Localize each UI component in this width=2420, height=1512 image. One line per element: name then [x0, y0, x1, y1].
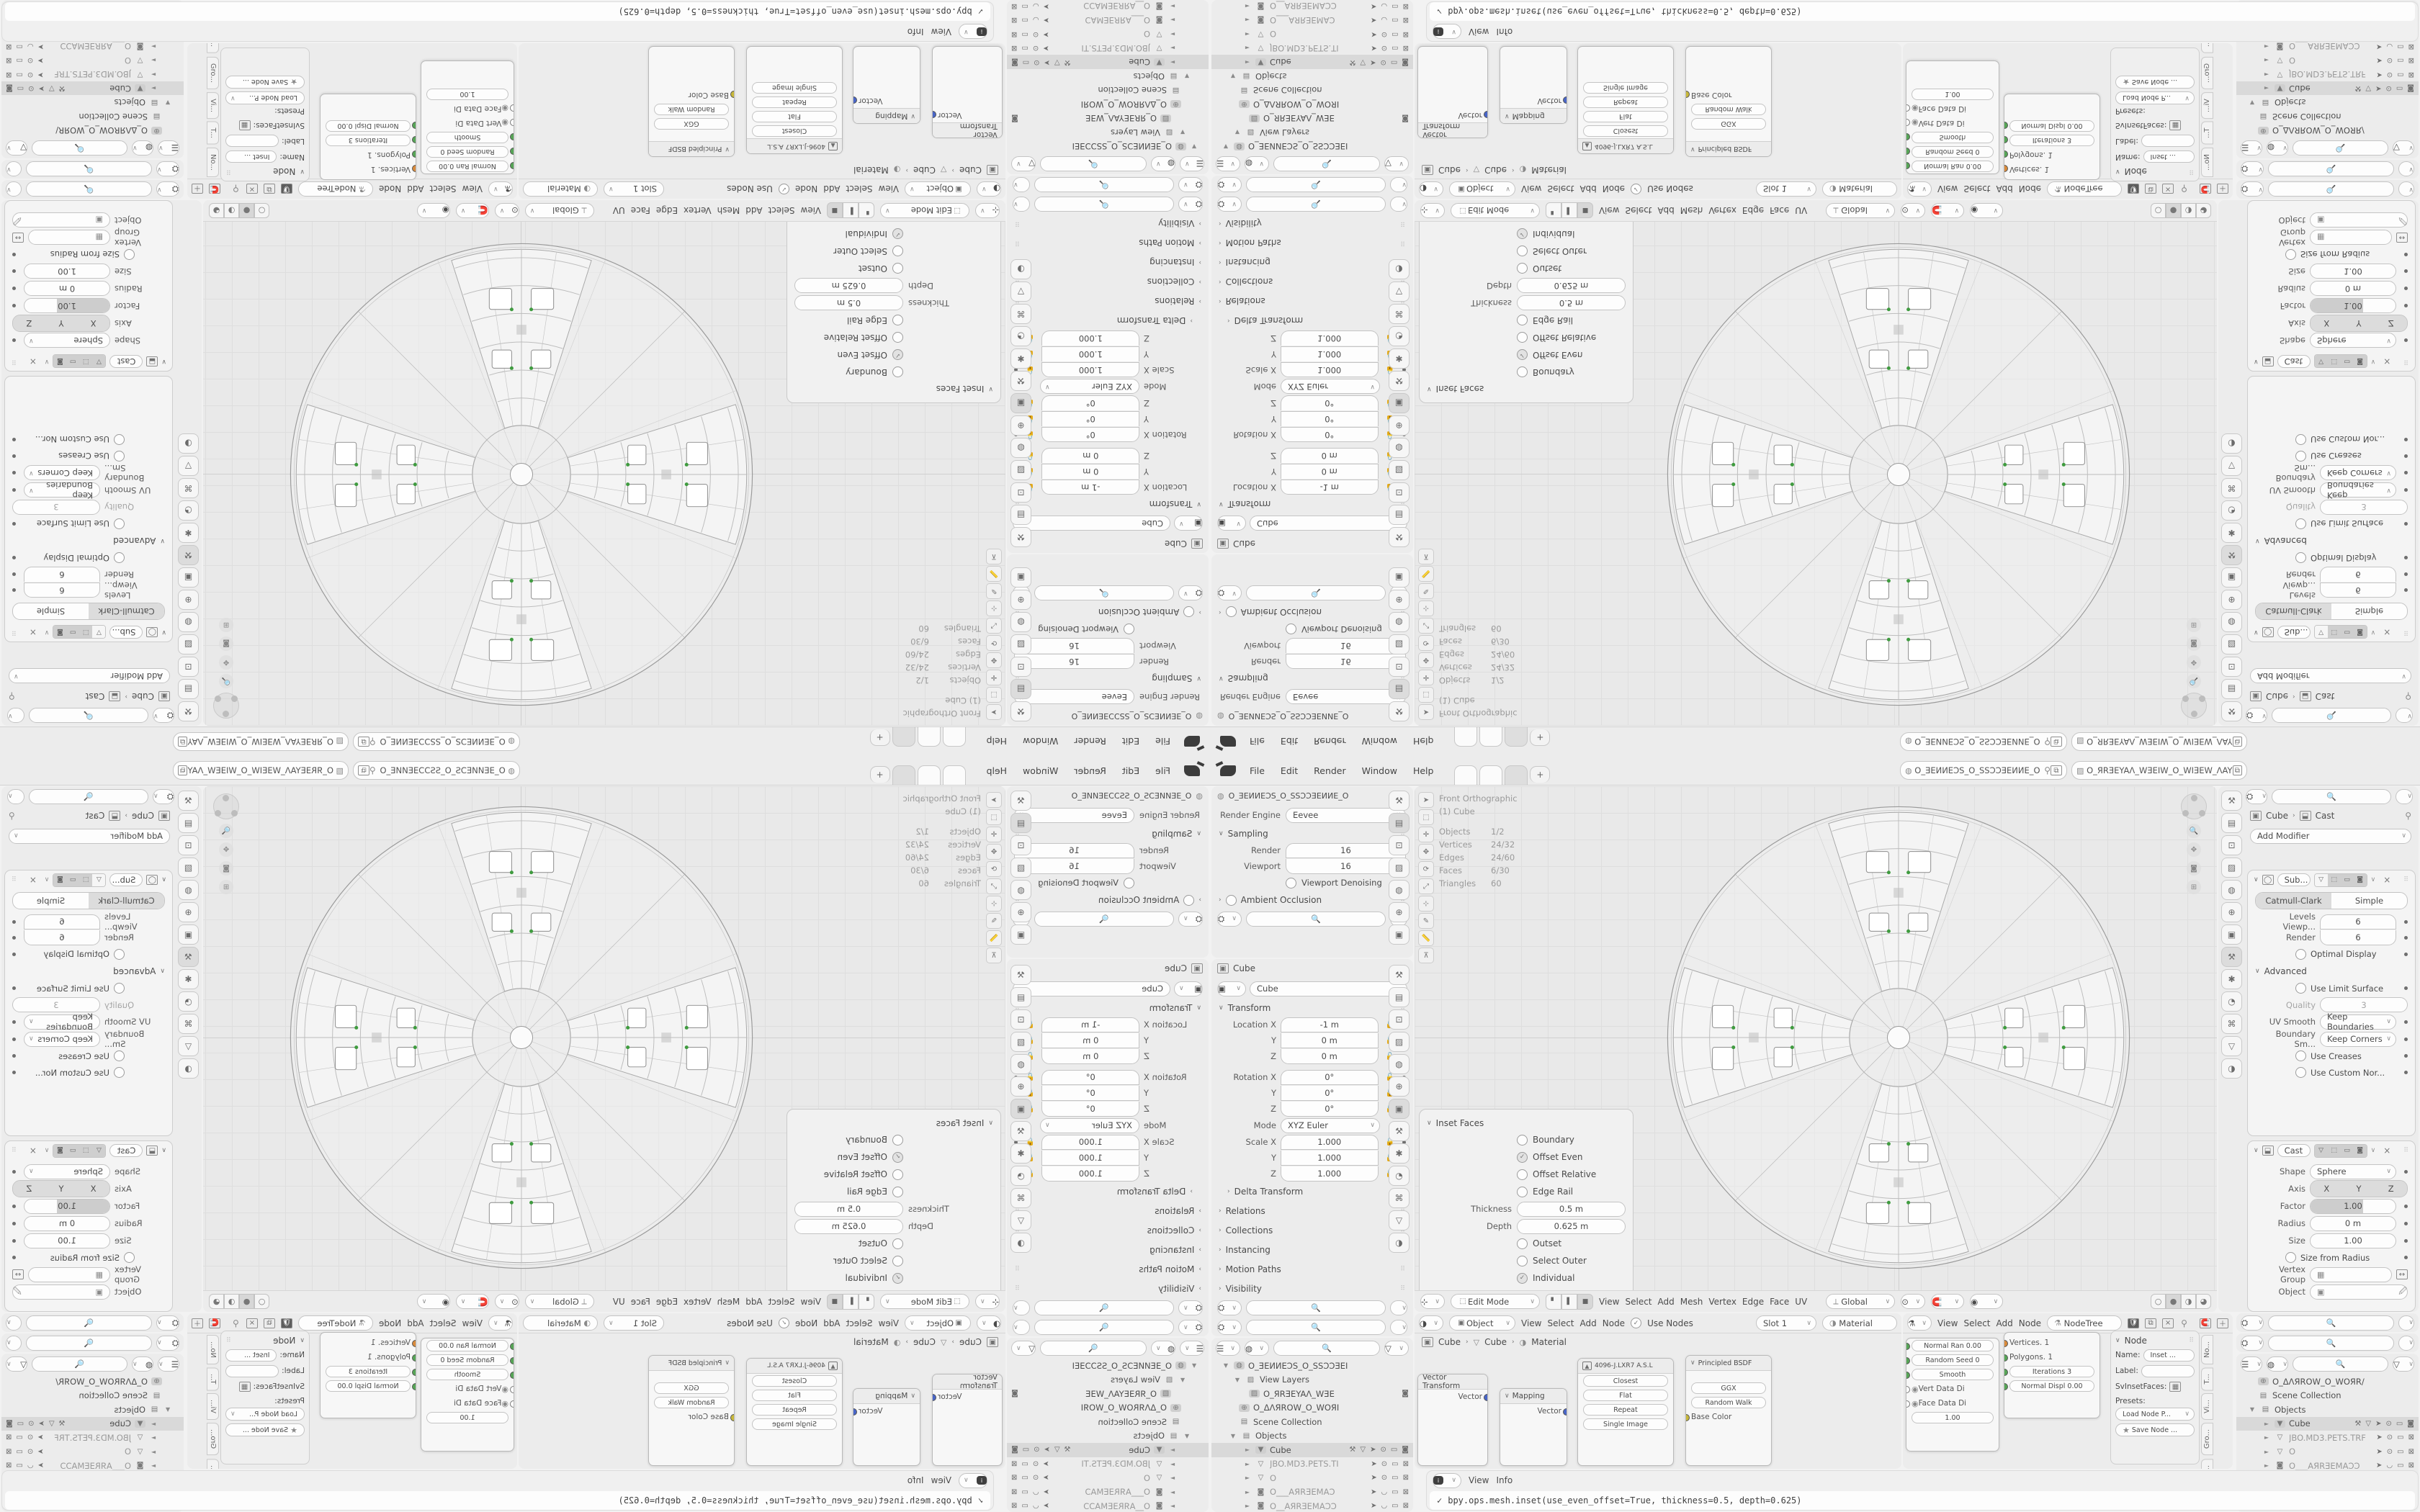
subdivided-sphere-mesh[interactable] [1654, 793, 2143, 1282]
info-log-row[interactable]: ✓ bpy.ops.mesh.inset(use_even_offset=Tru… [5, 1491, 990, 1510]
cast-shape-select[interactable]: Sphere∨ [2310, 333, 2396, 348]
image-texture-node[interactable]: ▲4096-J.LXR7 A.S.L Closest Flat Repeat S… [746, 46, 843, 154]
save-node-preset-button[interactable]: ★ Save Node ... [2115, 1423, 2195, 1436]
outliner-row-cube[interactable]: ►▼Cube ⚒▽➤⊙▭◙ [1211, 1443, 1413, 1457]
delete-modifier-button[interactable]: × [30, 627, 37, 637]
sampling-section[interactable]: ∨Sampling⠿ [1007, 825, 1209, 842]
viewport-menu-edge[interactable]: Edge [656, 206, 678, 216]
node-label-input[interactable] [225, 135, 279, 148]
material-slot-select[interactable]: Slot 1∨ [604, 1315, 664, 1331]
particles-tab[interactable]: ✱ [2221, 969, 2242, 989]
copy-icon[interactable]: ⧉ [264, 1318, 275, 1328]
viewport-menu-view[interactable]: View [801, 206, 821, 216]
camera-view-gizmo[interactable]: ◙ [219, 636, 233, 651]
info-menu-info[interactable]: Info [1496, 27, 1512, 37]
disable-viewport-icon[interactable]: ▭ [17, 84, 24, 92]
modifier-name-input[interactable]: Sub... [2277, 626, 2311, 639]
delete-modifier-button[interactable]: × [30, 1146, 37, 1156]
keyframe-dot[interactable] [2404, 986, 2408, 990]
node-menu-view[interactable]: View [462, 184, 483, 194]
outliner-row-objects[interactable]: ▼▤Objects [1211, 1429, 1413, 1444]
render-tab[interactable]: ▤ [1389, 813, 1410, 833]
options-dropdown[interactable]: ∨ [1390, 197, 1407, 212]
viewport-menu-uv[interactable]: UV [613, 1297, 625, 1307]
workspace-tab-active[interactable] [1505, 765, 1528, 785]
tab-sverchok[interactable]: Sverc... [2201, 1459, 2213, 1470]
material-shading-button[interactable]: ◑ [2181, 203, 2196, 218]
material-slot-select[interactable]: Slot 1∨ [604, 181, 664, 197]
properties-search-input[interactable]: 🔍 [1246, 912, 1386, 927]
rotation-x-input[interactable]: 0° [1041, 428, 1139, 443]
editor-type-button[interactable]: i ∨ [959, 24, 987, 40]
particles-tab[interactable]: ✱ [1389, 348, 1410, 369]
principled-bsdf-node[interactable]: ∨Principled BSDF GGX Random Walk Base Co… [1685, 46, 1772, 157]
options-dropdown[interactable]: ∨ [1390, 1320, 1407, 1335]
rotation-z-input[interactable]: 0° [1041, 1102, 1139, 1117]
modifiers-tab[interactable]: ⚒ [2221, 947, 2242, 967]
edge-rail-checkbox[interactable] [1517, 1187, 1528, 1197]
drag-handle[interactable]: ⠿ [2403, 876, 2409, 883]
properties-search-input[interactable]: 🔍 [26, 182, 152, 197]
info-menu-view[interactable]: View [931, 27, 951, 37]
hide-eye-icon[interactable]: ⊙ [2385, 84, 2391, 92]
hide-eye-icon[interactable]: ⊙ [2387, 1434, 2393, 1441]
disable-render-icon[interactable]: ⊠ [1011, 16, 1017, 24]
properties-search-input[interactable]: 🔍 [1246, 177, 1386, 192]
editor-type-button[interactable]: ⛭∨ [1178, 1300, 1203, 1315]
disable-render-icon[interactable]: ◙ [1402, 1446, 1409, 1454]
outliner-row-world[interactable]: ⊕O_ΔΛЯROW_O_WOЯI [1007, 97, 1209, 112]
disable-render-icon[interactable]: ⊠ [1011, 30, 1017, 38]
rendered-shading-button[interactable]: ◕ [209, 203, 224, 218]
samples-render-input[interactable]: 16 [1014, 654, 1134, 670]
outset-checkbox[interactable] [892, 264, 903, 274]
tab-node[interactable]: No... [207, 1335, 219, 1364]
modifier-name-input[interactable]: Cast [109, 1144, 143, 1157]
camera-icon[interactable]: ◙ [1402, 1390, 1409, 1398]
tab-node[interactable]: No... [2201, 1335, 2213, 1364]
advanced-section[interactable]: ∨Advanced [12, 963, 165, 980]
properties-search-input[interactable]: 🔍 [2272, 708, 2391, 724]
tab-group[interactable]: Gro... [2201, 57, 2213, 89]
outliner-row-scene[interactable]: ▼◍O_ƎEИИEƆS_O_SSƆƆƎEI [1211, 1359, 1413, 1373]
scale-z-input[interactable]: 1.000 [1281, 331, 1379, 346]
properties-search-input[interactable]: 🔍 [26, 162, 152, 177]
levels-render-input[interactable]: 6 [2320, 930, 2396, 945]
preset-icon[interactable]: ▦ [239, 120, 251, 130]
cast-factor-slider[interactable]: 1.00 [2310, 299, 2396, 314]
node-menu-node[interactable]: Node [379, 184, 401, 194]
options-dropdown[interactable]: ∨ [1013, 177, 1030, 192]
tab-group[interactable]: Gro... [207, 1423, 219, 1455]
output-tab[interactable]: ⊡ [1389, 1009, 1410, 1030]
expand-icon[interactable]: ∨ [2254, 629, 2259, 636]
disable-viewport-icon[interactable]: ▭ [1391, 30, 1398, 38]
mapping-node[interactable]: ∨Mapping Vector [853, 46, 920, 124]
rotation-y-input[interactable]: 0° [1041, 1086, 1139, 1101]
disable-render-icon[interactable]: ⊠ [6, 56, 12, 64]
outliner-filter-button[interactable]: ▽∨ [6, 1356, 27, 1372]
select-arrow-icon[interactable]: ➤ [38, 1462, 44, 1470]
visibility-section[interactable]: ›Visibility⠿ [1211, 1279, 1413, 1298]
keyframe-dot[interactable] [12, 1170, 16, 1174]
properties-search-input[interactable]: 🔍 [1034, 1320, 1174, 1335]
shader-menu-view[interactable]: View [879, 1318, 899, 1328]
add-modifier-button[interactable]: Add Modifier∨ [2250, 669, 2411, 684]
advanced-section[interactable]: ∨Advanced [2255, 532, 2408, 549]
vertex-group-input[interactable]: ▦ [28, 1267, 110, 1282]
sverchok-mesh-node[interactable]: Vertices. 1 Polygons. 1 Iterations 3 Nor… [2004, 1332, 2100, 1418]
rotation-y-input[interactable]: 0° [1281, 412, 1379, 427]
menu-render[interactable]: Render [1306, 737, 1354, 747]
copy-icon[interactable]: ⧉ [178, 737, 187, 747]
axis-orbit-gizmo[interactable] [2181, 693, 2207, 719]
proportional-edit-toggle[interactable]: ◉∨ [1970, 1294, 2003, 1309]
outliner-filter-id[interactable]: ◍∨ [1151, 1341, 1175, 1356]
transform-section[interactable]: ∨Transform⠿ [1211, 495, 1413, 513]
location-y-input[interactable]: 0 m [1041, 464, 1139, 480]
source-select[interactable]: Single Image [752, 82, 837, 94]
face-select-button[interactable]: ■ [827, 1294, 843, 1310]
axis-z-button[interactable]: Z [13, 315, 45, 331]
drag-handle[interactable]: ⠿ [11, 358, 17, 365]
tool-tab[interactable]: ⚒ [1010, 965, 1031, 985]
render-toggle[interactable]: ◙ [53, 356, 66, 368]
keyframe-dot[interactable] [12, 573, 16, 577]
outliner-filter-button[interactable]: ▽∨ [1384, 156, 1409, 171]
edit-mode-toggle[interactable]: ▽ [2315, 626, 2328, 639]
outliner-search-input[interactable]: 🔍 [32, 140, 127, 156]
world-tab[interactable]: ⊕ [178, 590, 199, 610]
properties-search-input[interactable]: 🔍 [26, 1315, 152, 1331]
physics-tab[interactable]: ◔ [1010, 326, 1031, 346]
samples-render-input[interactable]: 16 [1286, 843, 1406, 858]
outliner-row-camera[interactable]: ►◙O__AЯRƎEMAƆƆ ➤◡▭⊠ [1007, 0, 1209, 13]
blender-logo-icon[interactable] [1220, 765, 1236, 776]
editor-type-button[interactable]: ⛭∨ [153, 789, 174, 804]
modifier-extras-dropdown[interactable]: ∨ [40, 1147, 50, 1154]
select-outer-checkbox[interactable] [892, 246, 903, 257]
edit-mode-toggle[interactable]: ▽ [2315, 356, 2328, 368]
select-arrow-icon[interactable]: ➤ [1371, 1474, 1376, 1482]
view-layer-tab[interactable]: ▨ [1010, 634, 1031, 654]
outliner-search-input[interactable]: 🔍 [2293, 140, 2388, 156]
ambient-occlusion-checkbox[interactable] [1226, 607, 1237, 618]
outliner-row-scene-collection[interactable]: ▤Scene Collection [1, 1389, 184, 1403]
node-menu-add[interactable]: Add [407, 1318, 423, 1328]
select-arrow-icon[interactable]: ➤ [2376, 1462, 2382, 1470]
render-tab[interactable]: ▤ [1389, 679, 1410, 699]
outliner-row[interactable]: ►▽O ➤⊙▭⊠ [1211, 27, 1413, 42]
shader-type-select[interactable]: ▣Object∨ [905, 1315, 971, 1331]
render-tab[interactable]: ▤ [1010, 813, 1031, 833]
tool-tab[interactable]: ⚒ [2221, 791, 2242, 811]
delta-transform-section[interactable]: ›Delta Transform [1211, 1182, 1413, 1201]
scene-tab[interactable]: ◍ [178, 880, 199, 900]
keyframe-dot[interactable] [2404, 1038, 2408, 1041]
invert-vgroup-button[interactable]: ↔ [12, 1269, 24, 1279]
vertex-select-button[interactable]: ▘ [859, 1294, 874, 1310]
workspace-tab-active[interactable] [892, 727, 915, 747]
offset-relative-checkbox[interactable] [1517, 333, 1528, 343]
select-arrow-icon[interactable]: ➤ [1043, 1474, 1049, 1482]
disable-viewport-icon[interactable]: ▭ [1023, 1446, 1029, 1454]
editor-type-button[interactable]: ⛭∨ [1178, 586, 1203, 601]
sss-method-select[interactable]: Random Walk [654, 104, 729, 115]
rendered-shading-button[interactable]: ◕ [2196, 1294, 2211, 1309]
image-texture-node[interactable]: ▲4096-J.LXR7 A.S.L Closest Flat Repeat S… [746, 1358, 843, 1466]
boundary-checkbox[interactable] [892, 367, 903, 378]
collections-section[interactable]: ›Collections⠿ [1211, 1220, 1413, 1240]
transform-section[interactable]: ∨Transform⠿ [1007, 495, 1209, 513]
viewport-menu-face[interactable]: Face [1770, 1297, 1789, 1307]
disable-viewport-icon[interactable]: ▭ [1021, 1474, 1028, 1482]
offset-even-checkbox[interactable]: ✓ [1517, 1152, 1528, 1163]
world-tab[interactable]: ⊕ [1010, 590, 1031, 610]
editor-type-button[interactable]: ◑∨ [977, 181, 1001, 197]
modifiers-tab[interactable]: ⚒ [178, 545, 199, 565]
info-log-row[interactable]: ✓ bpy.ops.mesh.inset(use_even_offset=Tru… [1430, 2, 2415, 21]
disable-viewport-icon[interactable]: ▭ [1391, 1488, 1398, 1496]
workspace-tab[interactable] [1454, 727, 1477, 747]
cursor-tool[interactable]: ✛ [1418, 827, 1434, 842]
advanced-section[interactable]: ∨Advanced [12, 532, 165, 549]
node-menu-node[interactable]: Node [2019, 1318, 2041, 1328]
particles-tab[interactable]: ✱ [178, 523, 199, 543]
size-from-radius-checkbox[interactable] [124, 1252, 135, 1263]
projection-select[interactable]: Flat [752, 1390, 837, 1401]
particles-tab[interactable]: ✱ [1010, 1143, 1031, 1164]
outliner-row-scene-collection[interactable]: ▤Scene Collection [1211, 84, 1413, 98]
interpolation-select[interactable]: Closest [1583, 1375, 1668, 1387]
measure-tool[interactable]: 📏 [1418, 930, 1434, 946]
cast-size-input[interactable]: 1.00 [24, 264, 110, 279]
disable-render-icon[interactable]: ⊠ [2408, 1462, 2414, 1470]
levels-viewport-input[interactable]: 6 [24, 583, 100, 598]
hide-eye-icon[interactable]: ⊙ [28, 1420, 34, 1428]
close-icon[interactable]: × [246, 1318, 258, 1328]
select-arrow-icon[interactable]: ➤ [2376, 1448, 2382, 1456]
viewport-menu-select[interactable]: Select [1625, 1297, 1652, 1307]
samples-render-input[interactable]: 16 [1286, 654, 1406, 670]
delete-modifier-button[interactable]: × [2383, 875, 2390, 885]
node-menu-select[interactable]: Select [429, 1318, 456, 1328]
delta-transform-section[interactable]: ›Delta Transform [1007, 311, 1209, 330]
render-toggle[interactable]: ◙ [2354, 626, 2367, 639]
outliner-row[interactable]: ►▽O ➤⊙▭⊠ [1, 53, 184, 68]
tab-tree[interactable]: T... [2201, 122, 2213, 145]
add-workspace-button[interactable]: + [870, 766, 890, 783]
boundary-smooth-select[interactable]: Keep Corners∨ [2320, 466, 2396, 481]
samples-render-input[interactable]: 16 [1014, 843, 1134, 858]
outliner-row[interactable]: ►▽JBO.MD3.PETS.TRF ➤⊙▭⊠ [2236, 1431, 2419, 1445]
pivot-point-select[interactable]: ⊙∨ [495, 1294, 519, 1309]
outliner-row-objects[interactable]: ▼▤Objects [1, 1403, 184, 1417]
offset-even-checkbox[interactable]: ✓ [892, 350, 903, 361]
modifiers-tab[interactable]: ⚒ [178, 947, 199, 967]
editor-type-button[interactable]: ⛭∨ [156, 1336, 179, 1351]
keyframe-dot[interactable] [2404, 1256, 2408, 1259]
viewport-menu-vertex[interactable]: Vertex [1708, 1297, 1736, 1307]
outliner-row-camera[interactable]: ►◙O___AЯRƎEMAƆ ➤◡▭⊠ [1007, 1485, 1209, 1500]
object-tab[interactable]: ▣ [1010, 1099, 1031, 1119]
modifiers-tab[interactable]: ⚒ [1010, 1121, 1031, 1141]
viewport-denoising-checkbox[interactable] [1124, 624, 1134, 635]
keyframe-dot[interactable] [2404, 1239, 2408, 1243]
constraints-tab[interactable]: ⌘ [178, 478, 199, 498]
render-tab[interactable]: ▤ [2221, 813, 2242, 833]
disable-render-icon[interactable]: ⊠ [2408, 71, 2414, 78]
keyframe-dot[interactable] [2404, 270, 2408, 274]
extension-select[interactable]: Repeat [752, 96, 837, 108]
scale-y-input[interactable]: 1.000 [1041, 347, 1139, 362]
viewport-menu-select[interactable]: Select [1625, 206, 1652, 216]
workspace-tab-active[interactable] [1505, 727, 1528, 747]
size-from-radius-checkbox[interactable] [124, 249, 135, 260]
outliner-row-world[interactable]: ⊕O_ΔΛЯROW_O_WOЯR/ [1, 124, 184, 138]
save-node-preset-button[interactable]: ★ Save Node ... [225, 1423, 305, 1436]
outliner-filter-id[interactable]: ◍∨ [132, 140, 153, 156]
outliner-filter-button[interactable]: ▽∨ [1384, 1341, 1409, 1356]
render-toggle[interactable]: ◙ [53, 626, 66, 639]
hide-eye-icon[interactable]: ⊙ [2387, 1448, 2393, 1456]
disable-render-icon[interactable]: ⊠ [1011, 1460, 1017, 1468]
viewport-menu-vertex[interactable]: Vertex [1708, 206, 1736, 216]
add-workspace-button[interactable]: + [870, 729, 890, 746]
viewport-menu-uv[interactable]: UV [613, 206, 625, 216]
node-name-input[interactable]: Inset ... [2143, 151, 2195, 163]
view-layer-tab[interactable]: ▨ [2221, 634, 2242, 654]
options-dropdown[interactable]: ∨ [6, 162, 22, 177]
editor-type-button[interactable]: ⛭∨ [1217, 1300, 1242, 1315]
hide-eye-icon[interactable]: ⊙ [1034, 58, 1039, 66]
mapping-node[interactable]: ∨Mapping Vector [1500, 1388, 1567, 1466]
cursor-tool[interactable]: ✛ [986, 827, 1002, 842]
eyedropper-icon[interactable]: 🖉 [13, 214, 22, 228]
outliner-row-objects[interactable]: ▼▤Objects [1007, 1429, 1209, 1444]
menu-edit[interactable]: Edit [1114, 737, 1147, 747]
disable-viewport-icon[interactable]: ▭ [1391, 1474, 1398, 1482]
disable-render-icon[interactable]: ⊠ [2408, 56, 2414, 64]
options-dropdown[interactable]: ∨ [2398, 1336, 2414, 1351]
keyframe-dot[interactable] [2404, 589, 2408, 593]
tab-sverchok[interactable]: Sverc... [207, 43, 219, 54]
tool-tab[interactable]: ⚒ [1389, 527, 1410, 547]
uv-smooth-select[interactable]: Keep Boundaries∨ [24, 1014, 100, 1030]
mode-select[interactable]: ⬚ Edit Mode∨ [880, 1294, 969, 1309]
output-tab[interactable]: ⊡ [2221, 835, 2242, 855]
disable-viewport-icon[interactable]: ▭ [16, 1434, 22, 1441]
disable-viewport-icon[interactable]: ▭ [2396, 1420, 2403, 1428]
node-tree-select[interactable]: ⚗ NodeTree [2047, 1315, 2122, 1331]
vector-transform-node[interactable]: Vector Transform Vector [1417, 1374, 1488, 1466]
outliner-row-cube[interactable]: ►▼Cube ⚒▽➤⊙▭◙ [1007, 1443, 1209, 1457]
perspective-gizmo[interactable]: ⊞ [219, 618, 233, 632]
pin-icon[interactable]: ⚲ [2044, 737, 2051, 747]
menu-edit[interactable]: Edit [1273, 737, 1306, 747]
editor-type-button[interactable]: ⛭∨ [1178, 1320, 1203, 1335]
use-limit-surface-checkbox[interactable] [2295, 518, 2306, 529]
material-tab[interactable]: ◑ [178, 1058, 199, 1079]
tab-node[interactable]: No... [2201, 148, 2213, 177]
cast-radius-input[interactable]: 0 m [24, 282, 110, 297]
disable-viewport-icon[interactable]: ▭ [1021, 1488, 1028, 1496]
use-creases-checkbox[interactable] [2295, 451, 2306, 462]
viewport-menu-view[interactable]: View [1599, 1297, 1619, 1307]
scene-tab[interactable]: ◍ [1389, 612, 1410, 632]
drag-handle[interactable]: ⠿ [11, 1147, 17, 1154]
disable-render-icon[interactable]: ◙ [6, 1420, 13, 1428]
expand-icon[interactable]: ∨ [2254, 876, 2259, 883]
keyframe-dot[interactable] [2404, 438, 2408, 441]
viewport-menu-select[interactable]: Select [768, 1297, 794, 1307]
outliner-row-world[interactable]: ⊕O_ΔΛЯROW_O_WOЯR/ [1, 1374, 184, 1389]
tweak-tool[interactable]: ➤ [986, 704, 1002, 720]
select-arrow-icon[interactable]: ➤ [1044, 16, 1049, 24]
hide-eye-icon[interactable]: ⊙ [1380, 58, 1386, 66]
outliner-row[interactable]: ►▽JBO.MD3.PETS.TI ➤⊙▭⊠ [1211, 41, 1413, 55]
perspective-gizmo[interactable]: ⊞ [2187, 618, 2201, 632]
extrude-tool[interactable]: ⊼ [1418, 948, 1434, 963]
advanced-section[interactable]: ∨Advanced [2255, 963, 2408, 980]
disable-render-icon[interactable]: ⊠ [6, 1434, 12, 1441]
disable-viewport-icon[interactable]: ▭ [16, 1462, 22, 1470]
ambient-occlusion-section[interactable]: › Ambient Occlusion⠿ [1211, 603, 1413, 621]
pin-icon[interactable]: ⚲ [9, 811, 15, 821]
render-tab[interactable]: ▤ [1010, 505, 1031, 525]
viewport-menu-mesh[interactable]: Mesh [1680, 1297, 1703, 1307]
outliner-row-objects[interactable]: ▼▤Objects [1007, 69, 1209, 84]
depth-input[interactable]: 0.625 m [1517, 279, 1626, 294]
select-arrow-icon[interactable]: ➤ [37, 71, 43, 78]
preset-icon[interactable]: ▦ [2169, 120, 2181, 130]
solid-shading-button[interactable]: ● [2166, 203, 2181, 218]
render-tab[interactable]: ▤ [1010, 987, 1031, 1007]
render-tab[interactable]: ▤ [2221, 679, 2242, 699]
expand-icon[interactable]: ∨ [2254, 358, 2259, 365]
load-node-preset-button[interactable]: Load Node P...∨ [2115, 1408, 2195, 1421]
visibility-section[interactable]: ›Visibility⠿ [1007, 214, 1209, 233]
extension-select[interactable]: Repeat [1583, 1404, 1668, 1416]
keyframe-dot[interactable] [2404, 253, 2408, 256]
delete-modifier-button[interactable]: × [30, 875, 37, 885]
scale-y-input[interactable]: 1.000 [1281, 347, 1379, 362]
select-arrow-icon[interactable]: ➤ [39, 1420, 45, 1428]
edit-mode-toggle[interactable]: ▽ [92, 356, 105, 368]
hide-eye-icon[interactable]: ⊙ [1034, 1446, 1039, 1454]
snap-icon[interactable]: 🧲 [2200, 184, 2211, 194]
new-tree-icon[interactable]: ＋ [192, 184, 203, 194]
delete-modifier-button[interactable]: × [2383, 1146, 2390, 1156]
viewport-menu-edge[interactable]: Edge [656, 1297, 678, 1307]
data-tab[interactable]: ▽ [2221, 1036, 2242, 1056]
outliner-filter-button[interactable]: ▽∨ [1011, 156, 1036, 171]
outliner-row-scene-collection[interactable]: ▤Scene Collection [1007, 1415, 1209, 1429]
tool-tab[interactable]: ⚒ [1010, 791, 1031, 811]
render-toggle[interactable]: ◙ [2354, 356, 2367, 368]
scale-z-input[interactable]: 1.000 [1281, 1166, 1379, 1182]
properties-search-input[interactable]: 🔍 [2268, 1315, 2394, 1331]
shader-menu-add[interactable]: Add [823, 1318, 840, 1328]
editor-type-button[interactable]: ⊹∨ [975, 203, 1000, 218]
scale-tool[interactable]: ⤢ [986, 878, 1002, 894]
extrude-tool[interactable]: ⊼ [986, 948, 1002, 963]
keyframe-dot[interactable] [12, 1205, 16, 1208]
physics-tab[interactable]: ◔ [1389, 326, 1410, 346]
select-arrow-icon[interactable]: ➤ [1370, 58, 1376, 66]
output-tab[interactable]: ⊡ [178, 657, 199, 677]
properties-search-input[interactable]: 🔍 [2272, 789, 2391, 804]
